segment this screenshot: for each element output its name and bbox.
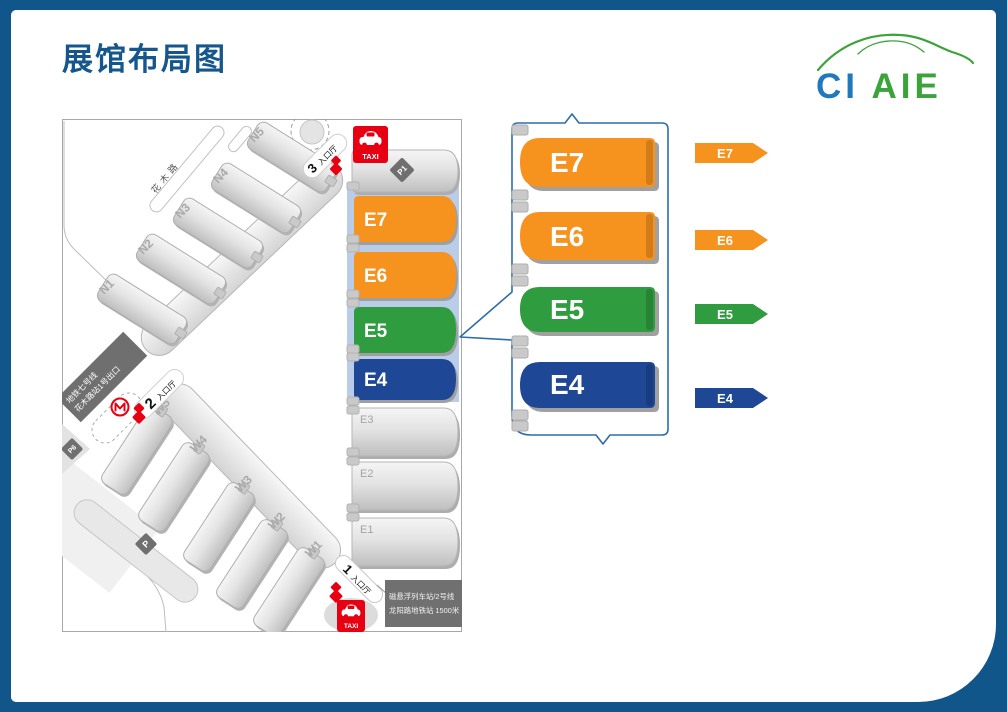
metro-logo-icon xyxy=(112,399,129,416)
logo-text-blue: CI xyxy=(816,67,859,106)
callout-hall-e7 xyxy=(520,138,655,187)
taxi-badge-bottom: TAXI xyxy=(337,600,365,632)
hall-e7-label: E7 xyxy=(364,210,387,231)
roundabout-building xyxy=(300,120,324,144)
hall-e4-label: E4 xyxy=(364,370,388,391)
callout-bubble: E7 E6 E5 E4 xyxy=(455,110,680,455)
taxi-badge-top: TAXI xyxy=(353,126,388,163)
e-column-colored: E7 E6 E5 E4 xyxy=(354,196,458,403)
callout-e7-label: E7 xyxy=(550,147,584,178)
logo-car-window-icon xyxy=(858,41,924,54)
ciaie-logo: CI AIE xyxy=(812,26,987,106)
legend-e5-label: E5 xyxy=(717,307,733,322)
info-sign-line2: 龙阳路地铁站 1500米 xyxy=(389,606,460,615)
legend-e4-label: E4 xyxy=(717,391,734,406)
logo-text: CI AIE xyxy=(816,67,942,106)
callout-e5-label: E5 xyxy=(550,294,584,325)
legend-item-e4: E4 xyxy=(695,388,768,408)
legend-item-e5: E5 xyxy=(695,304,768,324)
slide: 展馆布局图 CI AIE xyxy=(0,0,1007,712)
callout-hall-e6 xyxy=(520,212,655,260)
callout-hall-e5 xyxy=(520,287,655,332)
hall-e5-label: E5 xyxy=(364,321,388,342)
taxi-label-top: TAXI xyxy=(362,152,379,161)
hall-e6-label: E6 xyxy=(364,266,387,287)
callout-hall-e4 xyxy=(520,362,655,408)
legend-item-e6: E6 xyxy=(695,230,768,250)
taxi-label-bottom: TAXI xyxy=(344,623,359,630)
info-sign-line1: 磁悬浮列车站/2号线 xyxy=(389,592,455,601)
callout-e6-label: E6 xyxy=(550,221,584,252)
callout-e4-label: E4 xyxy=(550,369,585,400)
page-title: 展馆布局图 xyxy=(62,34,227,79)
hall-e2-label: E2 xyxy=(360,468,373,480)
venue-map: 花木路 芳甸路 W5 W4 xyxy=(62,119,462,632)
legend-e7-label: E7 xyxy=(717,146,733,161)
info-sign: 磁悬浮列车站/2号线 龙阳路地铁站 1500米 xyxy=(385,580,462,627)
logo-car-outline-icon xyxy=(818,35,973,70)
hall-e1-label: E1 xyxy=(360,524,373,536)
hall-e3-label: E3 xyxy=(360,414,373,426)
legend-item-e7: E7 xyxy=(695,143,768,163)
logo-text-green: AIE xyxy=(871,67,941,106)
legend-e6-label: E6 xyxy=(717,233,733,248)
legend: E7 E6 E5 E4 xyxy=(692,140,777,415)
